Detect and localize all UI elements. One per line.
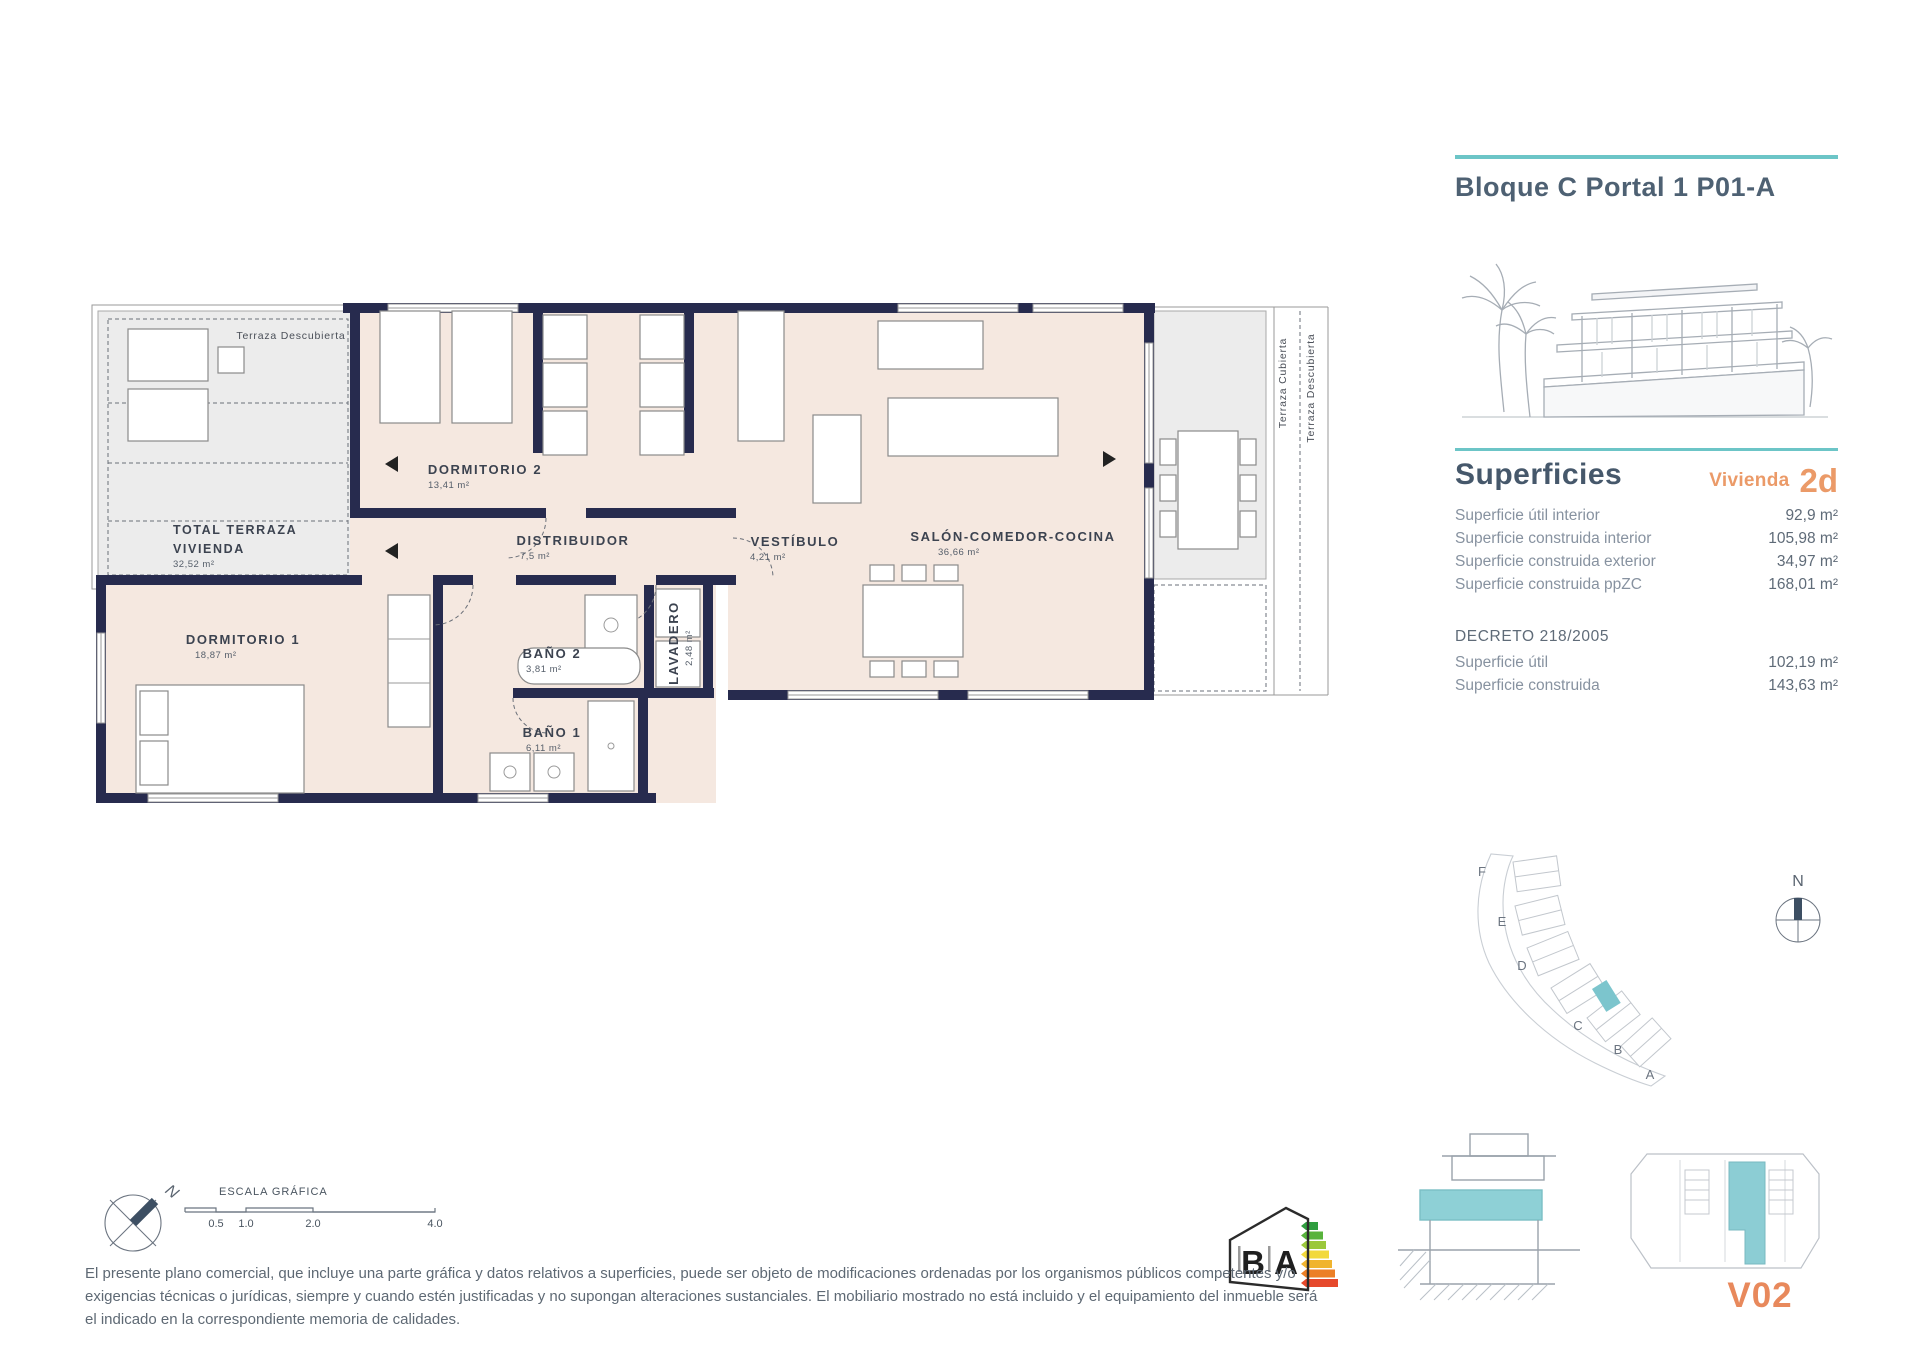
side-table [218, 347, 244, 373]
room-label-lavadero: LAVADERO [666, 601, 681, 685]
north-compass: N [1766, 868, 1836, 958]
superficie-row: Superficie construida interior 105,98 m² [1455, 530, 1838, 553]
scale-title: ESCALA GRÁFICA [219, 1185, 328, 1198]
scale-tick: 0.5 [208, 1218, 223, 1230]
superficie-row-label: Superficie construida interior [1455, 530, 1651, 553]
decreto-table: Superficie útil 102,19 m² Superficie con… [1455, 654, 1838, 700]
north-label: N [162, 1182, 182, 1203]
total-terraza-line1: TOTAL TERRAZA [173, 523, 297, 537]
highlighted-floor [1420, 1190, 1542, 1220]
lounger [128, 389, 208, 441]
disclaimer-text: El presente plano comercial, que incluye… [85, 1262, 1395, 1331]
dining-table [863, 585, 963, 657]
compass-needle [1794, 898, 1802, 920]
section-key-diagram [1390, 1128, 1590, 1318]
site-block-e: E [1498, 914, 1507, 929]
vivienda-value: 2d [1799, 462, 1838, 499]
room-area-bano1: 6,11 m² [526, 743, 561, 754]
site-block-d: D [1517, 958, 1526, 973]
total-terraza-area: 32,52 m² [173, 559, 215, 570]
terrace-top-label: Terraza Descubierta [236, 330, 345, 342]
site-block-b: B [1614, 1042, 1623, 1057]
superficies-table: Superficie útil interior 92,9 m² Superfi… [1455, 507, 1838, 599]
plan-compass: N [88, 1178, 188, 1268]
room-label-distribuidor: DISTRIBUIDOR [516, 533, 629, 548]
room-area-salon: 36,66 m² [938, 547, 980, 558]
site-plan: F E D C B A [1455, 848, 1695, 1098]
north-label: N [1792, 873, 1804, 890]
superficie-row-label: Superficie útil interior [1455, 507, 1600, 530]
decreto-heading: DECRETO 218/2005 [1455, 628, 1609, 646]
superficie-row-value: 143,63 m² [1768, 677, 1838, 700]
graphic-scale: ESCALA GRÁFICA 0.5 1.0 2.0 4.0 [183, 1182, 453, 1237]
scale-tick: 1.0 [238, 1218, 253, 1230]
kitchen-cabinets [738, 311, 784, 441]
superficie-row-label: Superficie construida ppZC [1455, 576, 1642, 599]
shower [588, 701, 634, 791]
superficies-accent-rule [1455, 448, 1838, 451]
superficie-row: Superficie construida exterior 34,97 m² [1455, 553, 1838, 576]
building-render-sketch [1452, 212, 1838, 444]
disclaimer-line: exigencias técnicas o jurídicas, siempre… [85, 1285, 1395, 1308]
room-area-dormitorio1: 18,87 m² [195, 650, 237, 661]
floorplan-drawing: Terraza Descubierta TOTAL TERRAZA VIVIEN… [88, 303, 1340, 815]
superficie-row-value: 168,01 m² [1768, 576, 1838, 599]
superficie-row-value: 102,19 m² [1768, 654, 1838, 677]
room-label-dormitorio1: DORMITORIO 1 [186, 632, 300, 647]
superficie-row: Superficie útil 102,19 m² [1455, 654, 1838, 677]
sofa [888, 398, 1058, 456]
site-block-c: C [1573, 1018, 1582, 1033]
bed [380, 311, 440, 423]
superficie-row-value: 92,9 m² [1785, 507, 1838, 530]
plan-sheet: Terraza Descubierta TOTAL TERRAZA VIVIEN… [0, 0, 1920, 1357]
scale-tick: 4.0 [427, 1218, 442, 1230]
room-label-dormitorio2: DORMITORIO 2 [428, 462, 542, 477]
room-area-vestibulo: 4,21 m² [750, 552, 786, 563]
page-title: Bloque C Portal 1 P01-A [1455, 172, 1838, 203]
site-block-a: A [1646, 1067, 1655, 1082]
wardrobe [388, 595, 430, 727]
version-label: V02 [1700, 1276, 1820, 1316]
room-area-lavadero: 2,48 m² [684, 630, 695, 666]
kitchen-island [878, 321, 983, 369]
superficie-row-value: 34,97 m² [1777, 553, 1838, 576]
tv-unit [813, 415, 861, 503]
scale-tick: 2.0 [305, 1218, 320, 1230]
superficie-row-value: 105,98 m² [1768, 530, 1838, 553]
compass-needle [133, 1201, 155, 1223]
room-area-bano2: 3,81 m² [526, 664, 562, 675]
room-label-salon: SALÓN-COMEDOR-COCINA [910, 529, 1115, 544]
superficie-row: Superficie construida 143,63 m² [1455, 677, 1838, 700]
superficie-row-label: Superficie construida [1455, 677, 1600, 700]
superficie-row-label: Superficie útil [1455, 654, 1548, 677]
bed [452, 311, 512, 423]
room-label-bano2: BAÑO 2 [523, 646, 582, 661]
floor-key-diagram [1625, 1140, 1825, 1290]
vivienda-label: Vivienda [1709, 470, 1789, 491]
room-area-dormitorio2: 13,41 m² [428, 480, 470, 491]
room-label-vestibulo: VESTÍBULO [751, 534, 840, 549]
site-block-f: F [1478, 864, 1486, 879]
dining-table-terrace [1178, 431, 1238, 549]
superficie-row: Superficie útil interior 92,9 m² [1455, 507, 1838, 530]
disclaimer-line: el indicado en la correspondiente memori… [85, 1308, 1395, 1331]
disclaimer-line: El presente plano comercial, que incluye… [85, 1262, 1395, 1285]
total-terraza-line2: VIVIENDA [173, 542, 245, 556]
room-area-distribuidor: 7,5 m² [520, 551, 550, 562]
title-accent-rule [1455, 155, 1838, 159]
terraza-descubierta-right-label: Terraza Descubierta [1305, 333, 1317, 442]
superficie-row: Superficie construida ppZC 168,01 m² [1455, 576, 1838, 599]
vivienda-tag: Vivienda2d [1455, 462, 1838, 500]
lounger [128, 329, 208, 381]
room-label-bano1: BAÑO 1 [523, 725, 582, 740]
terraza-cubierta-label: Terraza Cubierta [1277, 338, 1289, 428]
superficie-row-label: Superficie construida exterior [1455, 553, 1656, 576]
